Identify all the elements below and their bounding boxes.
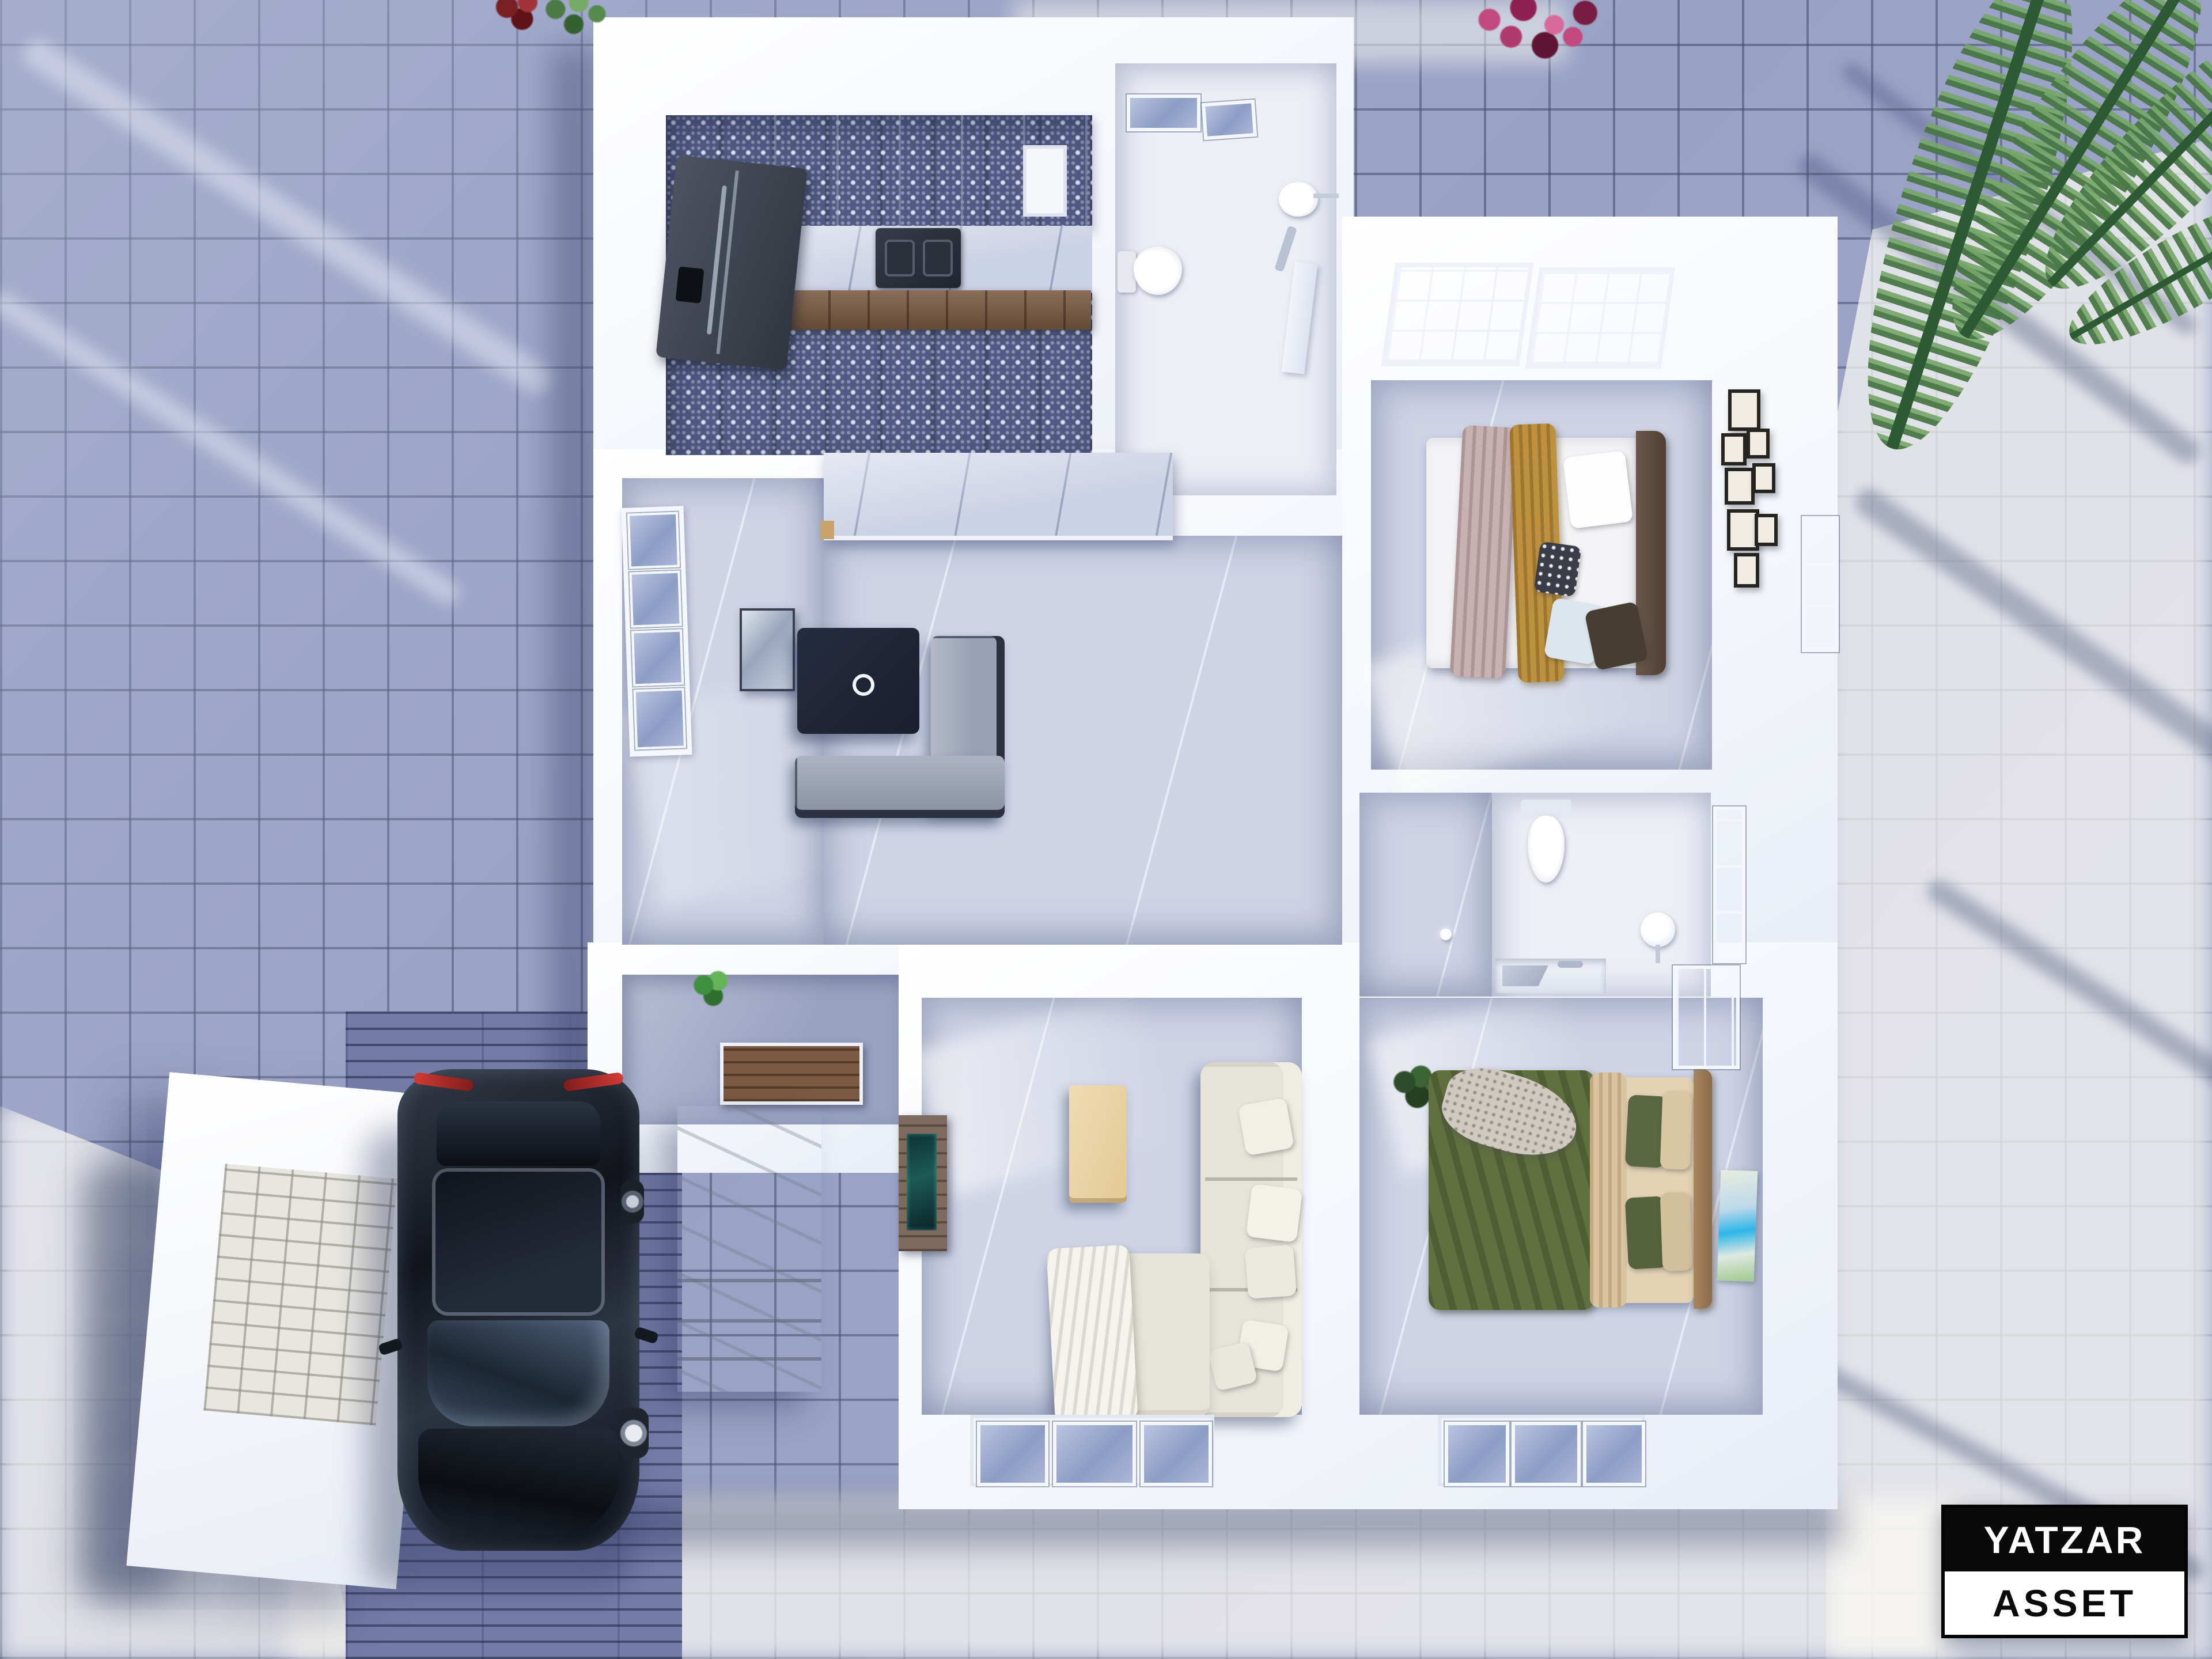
kitchen-shelves [1023, 145, 1067, 217]
tv-console [899, 1115, 947, 1251]
entry-plant [687, 965, 735, 1009]
shower-head [1279, 182, 1318, 217]
watermark-badge: YATZAR ASSET [1941, 1505, 2188, 1638]
toilet-bowl [1134, 247, 1182, 295]
burner [885, 240, 915, 276]
refrigerator [656, 155, 808, 370]
toilet [1118, 247, 1184, 297]
bedroom2-window-band [1438, 1415, 1645, 1486]
bed1-pillow-patterned [1533, 541, 1582, 597]
living-west-window [621, 506, 692, 757]
coffee-table-navy [797, 628, 919, 734]
bed2-fold-beige [1590, 1073, 1627, 1308]
car-rear-window [437, 1101, 600, 1166]
sofa-pillow [1238, 1097, 1294, 1156]
hallway-floor-lamp [1440, 929, 1452, 940]
sofa-gray-bottom [795, 756, 1005, 818]
bedroom1-skylight [1525, 267, 1676, 369]
sofa-white-right [1200, 1062, 1302, 1417]
mirror-stand [1656, 945, 1660, 963]
bedroom1-skylight [1381, 263, 1533, 366]
bathroom-top-window [1127, 94, 1200, 131]
bedroom1-east-window [1802, 516, 1839, 652]
bedroom2-wall-art [1717, 1170, 1758, 1282]
shower-arm [1313, 194, 1339, 198]
kitchen-island [824, 453, 1173, 540]
entry-door-deck [720, 1043, 863, 1105]
bathroom-top-window [1202, 100, 1257, 140]
watermark-line1: YATZAR [1945, 1508, 2184, 1571]
car-wheel-rear [621, 1180, 644, 1224]
toilet2 [1518, 800, 1574, 887]
car-roof [432, 1168, 605, 1316]
vanity-sink [1502, 965, 1548, 986]
bed1-pillow-white [1563, 450, 1633, 529]
entry-stone-steps [677, 1106, 821, 1392]
sofa-pillow [1245, 1245, 1297, 1299]
bedroom2-east-window [1673, 965, 1740, 1069]
table-cup [853, 674, 874, 696]
coffee-table-tan [1069, 1085, 1127, 1203]
toilet2-bowl [1528, 816, 1565, 882]
tv-screen [907, 1134, 937, 1230]
chaise-blanket [1046, 1244, 1138, 1423]
burner [923, 240, 953, 276]
car-windshield [427, 1320, 609, 1426]
floor-plan-render-scene: YATZAR ASSET [0, 0, 2212, 1659]
bed2-pillow-beige [1660, 1090, 1693, 1170]
car-hood [418, 1429, 619, 1535]
vanity-faucet-icon [1558, 961, 1583, 968]
bedroom2-bed [1433, 1077, 1702, 1303]
bathroom2-round-mirror [1641, 912, 1675, 947]
bedroom1-bed [1426, 438, 1662, 668]
bathroom2-window [1713, 806, 1745, 963]
bed2-headboard [1694, 1069, 1712, 1309]
living-room-floor [824, 536, 1342, 945]
kitchen-wood-cabinets [789, 290, 1091, 329]
toilet-tank [1118, 251, 1136, 293]
cooktop [876, 228, 961, 288]
hallway-floor [1359, 793, 1492, 997]
car [397, 1069, 639, 1551]
sofa-white-chaise [1055, 1253, 1210, 1417]
bed2-pillow-beige [1660, 1192, 1693, 1271]
island-wood-leg [820, 521, 834, 539]
sofa-pillow [1246, 1184, 1303, 1243]
fridge-control-panel [676, 267, 704, 304]
watermark-line2: ASSET [1945, 1571, 2184, 1635]
car-wheel-front [619, 1408, 649, 1459]
mirrored-side-cabinet [740, 608, 795, 691]
fridge-door-seam [716, 171, 738, 354]
family-window-band [970, 1415, 1214, 1486]
bathroom2-vanity [1495, 959, 1606, 993]
